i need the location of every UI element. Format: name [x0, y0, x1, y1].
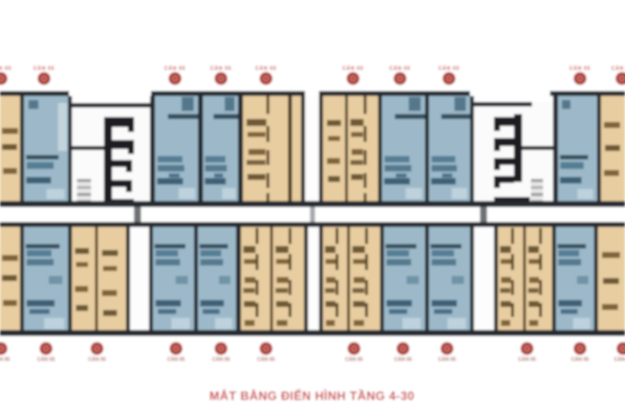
svg-text:CÀN 05: CÀN 05 [210, 65, 231, 72]
svg-text:CÀN 05: CÀN 05 [571, 356, 589, 363]
svg-text:CÀN 05: CÀN 05 [257, 356, 275, 363]
svg-text:MẮT BẰNG ĐIỂN HÌNH TẦNG 4-30: MẮT BẰNG ĐIỂN HÌNH TẦNG 4-30 [209, 388, 414, 403]
svg-text:CÀN 05: CÀN 05 [255, 65, 276, 72]
svg-text:CÀN 05: CÀN 05 [33, 65, 54, 72]
svg-text:CÀN 05: CÀN 05 [345, 356, 363, 363]
svg-text:CÀN 05: CÀN 05 [88, 356, 106, 363]
svg-text:CÀN 05: CÀN 05 [569, 65, 590, 72]
svg-text:CÀN 05: CÀN 05 [0, 65, 12, 72]
svg-text:CÀN 05: CÀN 05 [518, 356, 536, 363]
svg-text:CÀN 05: CÀN 05 [389, 65, 410, 72]
svg-text:CÀN 05: CÀN 05 [342, 65, 363, 72]
svg-text:CÀN 05: CÀN 05 [438, 65, 459, 72]
svg-text:CÀN 05: CÀN 05 [438, 356, 456, 363]
svg-text:CÀN 05: CÀN 05 [0, 356, 10, 363]
svg-text:CÀN 05: CÀN 05 [164, 65, 185, 72]
svg-text:CÀN 05: CÀN 05 [37, 356, 55, 363]
svg-text:CÀN 05: CÀN 05 [394, 356, 412, 363]
svg-text:CÀN 05: CÀN 05 [614, 356, 625, 363]
svg-text:CÀN 05: CÀN 05 [212, 356, 230, 363]
svg-text:CÀN 05: CÀN 05 [611, 65, 625, 72]
svg-text:CÀN 05: CÀN 05 [167, 356, 185, 363]
